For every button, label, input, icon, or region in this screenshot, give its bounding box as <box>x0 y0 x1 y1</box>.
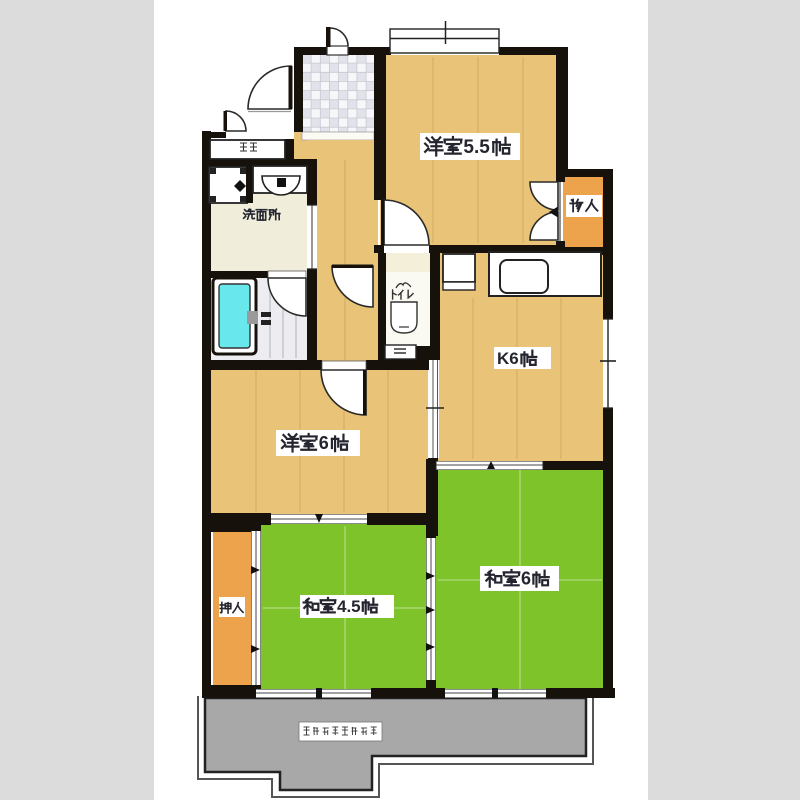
svg-text:4.5: 4.5 <box>337 597 361 616</box>
svg-text:K6: K6 <box>497 349 519 368</box>
svg-text:6: 6 <box>319 433 329 453</box>
svg-text:6: 6 <box>521 569 531 589</box>
svg-text:5.5: 5.5 <box>463 137 490 158</box>
